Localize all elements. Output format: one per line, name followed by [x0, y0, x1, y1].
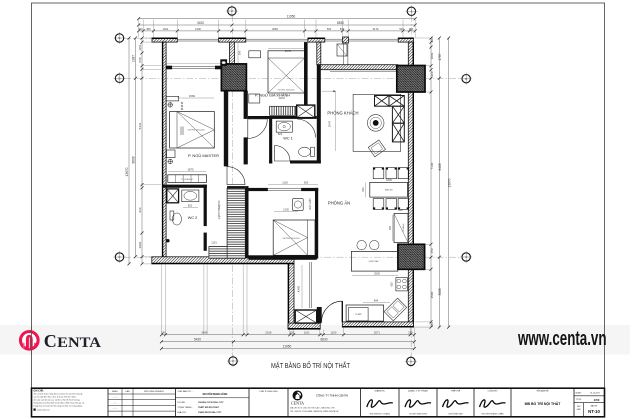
svg-text:NGÀY: NGÀY	[112, 390, 119, 393]
svg-text:540: 540	[138, 57, 142, 62]
svg-text:NỘI DUNG SỬA ĐỔI: NỘI DUNG SỬA ĐỔI	[144, 390, 164, 393]
svg-text:1003: 1003	[430, 52, 434, 59]
svg-text:1101: 1101	[211, 241, 217, 245]
svg-text:... / ...: ... / ...	[113, 397, 118, 399]
svg-text:NT-10: NT-10	[588, 409, 600, 414]
svg-text:de xuat can doi voi cac vat li: de xuat can doi voi cac vat lieu, thiet …	[34, 399, 81, 402]
svg-text:525: 525	[389, 225, 392, 230]
svg-text:VƯƠNG VĂN SÓNG: VƯƠNG VĂN SÓNG	[409, 413, 427, 416]
svg-text:... / ...: ... / ...	[113, 403, 118, 405]
svg-text:1560: 1560	[189, 94, 196, 98]
svg-text:230: 230	[408, 331, 413, 335]
svg-text:MÁY GIẶT: MÁY GIẶT	[309, 198, 312, 210]
svg-text:TỶ LỆ:: TỶ LỆ:	[576, 398, 582, 401]
svg-text:240: 240	[430, 37, 434, 42]
svg-text:... / ...: ... / ...	[113, 408, 118, 410]
svg-text:01.12.2017: 01.12.2017	[590, 393, 599, 395]
svg-text:2130: 2130	[283, 208, 289, 212]
svg-text:8408: 8408	[438, 163, 442, 170]
svg-text:2071: 2071	[374, 331, 380, 335]
svg-text:500: 500	[304, 181, 309, 185]
svg-text:2019: 2019	[265, 331, 271, 335]
svg-text:DIA CHI: SO 3 LK6C KDT MO LAO: DIA CHI: SO 3 LK6C KDT MO LAO - HA DONG …	[290, 406, 335, 409]
svg-text:200: 200	[138, 27, 143, 31]
svg-text:DỰ ÁN :: DỰ ÁN :	[178, 401, 187, 404]
svg-text:11950: 11950	[283, 344, 292, 348]
svg-text:250: 250	[409, 27, 414, 31]
svg-text:2572: 2572	[285, 49, 292, 53]
svg-text:NGUYỄN HOÀNG CHIẾN: NGUYỄN HOÀNG CHIẾN	[482, 413, 505, 416]
svg-text:500: 500	[327, 27, 332, 31]
svg-text:NGÔ ĐÌNH VĂN: NGÔ ĐÌNH VĂN	[449, 413, 464, 416]
svg-text:can ho doi dien thuc thuc te t: can ho doi dien thuc thuc te truoc khi t…	[34, 396, 77, 399]
svg-text:1100: 1100	[331, 331, 337, 335]
svg-text:NGUYỄN ĐỨC THẮNG: NGUYỄN ĐỨC THẮNG	[370, 413, 391, 416]
svg-text:1787: 1787	[438, 53, 442, 60]
svg-text:1/50: 1/50	[594, 398, 600, 402]
svg-text:TỦ QUẦN ÁO: TỦ QUẦN ÁO	[181, 178, 194, 181]
svg-text:PHÒNG KHÁCH: PHÒNG KHÁCH	[327, 111, 358, 116]
svg-text:GIƯỜNG 1600x2000: GIƯỜNG 1600x2000	[282, 237, 299, 240]
svg-text:THIẾT KẾ: THIẾT KẾ	[451, 389, 461, 392]
svg-text:CENTA: CENTA	[291, 401, 304, 406]
svg-text:12A05 R5 ROYAL CITY: 12A05 R5 ROYAL CITY	[198, 411, 222, 414]
svg-text:8630: 8630	[320, 338, 327, 342]
svg-text:CHUNG CƯ ROYAL CITY: CHUNG CƯ ROYAL CITY	[198, 401, 224, 404]
svg-text:3420: 3420	[197, 21, 204, 25]
svg-text:1100: 1100	[282, 181, 288, 185]
svg-text:500: 500	[238, 50, 242, 55]
svg-text:MẶT BẰNG BỐ TRÍ NỘI THẤT: MẶT BẰNG BỐ TRÍ NỘI THẤT	[271, 360, 350, 370]
svg-text:PHÒNG ĂN: PHÒNG ĂN	[328, 201, 350, 206]
svg-text:500: 500	[399, 27, 404, 31]
svg-text:CHỮ KÝ/GHI CHÚ: CHỮ KÝ/GHI CHÚ	[259, 390, 278, 393]
svg-text:3170: 3170	[373, 27, 379, 31]
svg-text:GIƯỜNG 1600x2000: GIƯỜNG 1600x2000	[277, 89, 294, 92]
svg-text:WC 2: WC 2	[188, 216, 198, 220]
svg-text:600: 600	[398, 208, 403, 212]
svg-text:ENTA: ENTA	[57, 335, 101, 351]
svg-text:2084: 2084	[272, 27, 278, 31]
svg-text:1800: 1800	[386, 178, 392, 182]
svg-text:CHỦ ĐẦU TƯ :: CHỦ ĐẦU TƯ :	[178, 390, 193, 393]
svg-text:GHI CHÚ:: GHI CHÚ:	[34, 390, 45, 393]
svg-text:QUẦY BAR: QUẦY BAR	[368, 260, 379, 263]
svg-text:600: 600	[391, 282, 394, 287]
svg-text:LẦN: LẦN	[125, 390, 130, 393]
svg-text:1151: 1151	[138, 44, 142, 51]
svg-text:www.centa.vn: www.centa.vn	[37, 409, 50, 412]
svg-text:TÊN BẢN VẼ: TÊN BẢN VẼ	[536, 389, 549, 392]
svg-text:CÔNG BỐ: CÔNG BỐ	[488, 389, 498, 392]
svg-text:13670: 13670	[448, 178, 452, 187]
svg-text:P. NGỦ GIA KHÁNH: P. NGỦ GIA KHÁNH	[255, 92, 290, 97]
svg-text:TEL: 0904 87 11 894 MAIL: WEBS: TEL: 0904 87 11 894 MAIL: WEBSITE: WWW.C…	[290, 410, 339, 413]
svg-text:thong bao voi nha thiet ke de: thong bao voi nha thiet ke de dieu chinh…	[34, 402, 86, 405]
svg-text:MB BỐ TRÍ NỘI THẤT: MB BỐ TRÍ NỘI THẤT	[525, 401, 562, 406]
svg-text:trang thuc te truoc khi thi co: trang thuc te truoc khi thi cong noi tha…	[34, 405, 83, 408]
svg-text:7130: 7130	[430, 162, 434, 169]
svg-text:3008: 3008	[438, 288, 442, 295]
svg-text:1875: 1875	[187, 168, 194, 172]
svg-text:900: 900	[361, 187, 365, 192]
svg-text:2020: 2020	[138, 241, 142, 248]
svg-text:13670: 13670	[125, 167, 129, 176]
svg-text:1300: 1300	[195, 27, 201, 31]
svg-text:CÔNG TY TNHH CENTA: CÔNG TY TNHH CENTA	[316, 393, 348, 398]
svg-text:TỦ LẠNH: TỦ LẠNH	[402, 223, 405, 232]
svg-text:820: 820	[188, 204, 193, 208]
svg-text:840: 840	[340, 27, 345, 31]
svg-text:5420: 5420	[194, 338, 201, 342]
svg-text:TỦ BẾP: TỦ BẾP	[355, 313, 363, 316]
svg-text:450: 450	[146, 27, 151, 31]
svg-text:2500: 2500	[374, 272, 380, 276]
svg-text:Tat ca kich thuoc tong the can: Tat ca kich thuoc tong the can kiem tra …	[34, 393, 83, 396]
svg-text:240: 240	[430, 322, 434, 327]
svg-text:8608: 8608	[131, 156, 135, 163]
svg-text:CÔNG TRÌNH :: CÔNG TRÌNH :	[178, 406, 193, 409]
svg-text:844: 844	[374, 299, 379, 303]
svg-text:QUẢN LÝ KỸ THUẬT: QUẢN LÝ KỸ THUẬT	[408, 389, 429, 392]
svg-text:BẢN VẼ: BẢN VẼ	[591, 405, 598, 408]
svg-text:C: C	[44, 331, 57, 351]
svg-text:P. NGỦ MASTER: P. NGỦ MASTER	[188, 153, 219, 158]
svg-text:1987: 1987	[131, 55, 135, 62]
svg-text:www.centa.vn: www.centa.vn	[517, 327, 606, 350]
svg-text:NGUYỄN MẠNH HÙNG: NGUYỄN MẠNH HÙNG	[203, 393, 228, 396]
svg-text:2500: 2500	[430, 291, 434, 298]
svg-text:WC 1: WC 1	[283, 137, 293, 141]
svg-text:1161: 1161	[304, 331, 310, 335]
svg-text:PHÒNG GIẶT: PHÒNG GIẶT	[217, 201, 222, 220]
svg-text:150: 150	[430, 248, 434, 253]
svg-text:1021: 1021	[163, 27, 169, 31]
svg-text:823: 823	[278, 132, 283, 136]
svg-text:300: 300	[430, 71, 434, 76]
svg-text:934: 934	[138, 207, 142, 212]
svg-text:8530: 8530	[337, 21, 344, 25]
svg-text:GIƯỜNG 1800x2000: GIƯỜNG 1800x2000	[187, 129, 204, 132]
svg-text:ĐỊA CHỈ :: ĐỊA CHỈ :	[178, 411, 188, 414]
svg-text:5441: 5441	[138, 122, 142, 129]
svg-text:2547: 2547	[328, 120, 332, 127]
svg-text:NGÀY:: NGÀY:	[576, 392, 582, 395]
svg-text:THIẾT KẾ NỘI THẤT: THIẾT KẾ NỘI THẤT	[198, 406, 220, 409]
svg-text:BÀN ĂN: BÀN ĂN	[385, 189, 393, 192]
svg-text:KHO: KHO	[297, 285, 301, 292]
svg-text:GIÁM ĐỐC: GIÁM ĐỐC	[375, 389, 386, 392]
svg-text:11950: 11950	[287, 15, 296, 19]
svg-text:3640: 3640	[201, 331, 207, 335]
